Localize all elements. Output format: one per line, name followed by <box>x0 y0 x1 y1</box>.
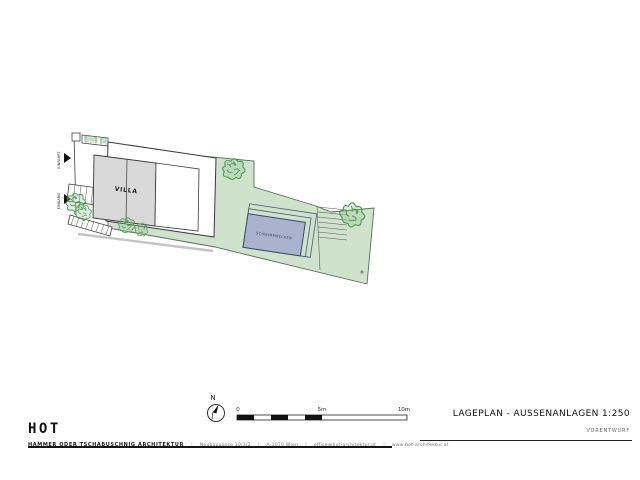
firm-website: www.hot-architektur.at <box>392 443 449 448</box>
entrance-label: EINGANG <box>57 192 61 209</box>
north-arrow: N <box>208 394 225 422</box>
driveway-arrow-icon <box>64 153 71 163</box>
driveway-label: EINFAHRT <box>57 151 61 169</box>
site-plan-drawing: SCHWIMMBECKEN <box>0 0 640 480</box>
footer-rule-left <box>28 446 392 448</box>
sheet-canvas: { "plan": { "villa_label": "VILLA", "poo… <box>0 0 640 480</box>
driveway-entry: EINFAHRT <box>57 151 71 169</box>
title-block: LAGEPLAN - AUSSENANLAGEN 1:250 VORENTWUR… <box>310 409 630 434</box>
tree-icon <box>84 136 90 142</box>
north-label: N <box>210 394 215 402</box>
villa-terrace <box>155 163 199 231</box>
scale-zero-label: 0 <box>236 407 240 413</box>
tree-icon <box>100 138 106 143</box>
tree-icon <box>92 137 98 142</box>
footer-rule-right <box>420 440 632 441</box>
sheet-title: LAGEPLAN - AUSSENANLAGEN 1:250 <box>310 409 630 419</box>
sheet-phase: VORENTWURF <box>310 428 630 434</box>
